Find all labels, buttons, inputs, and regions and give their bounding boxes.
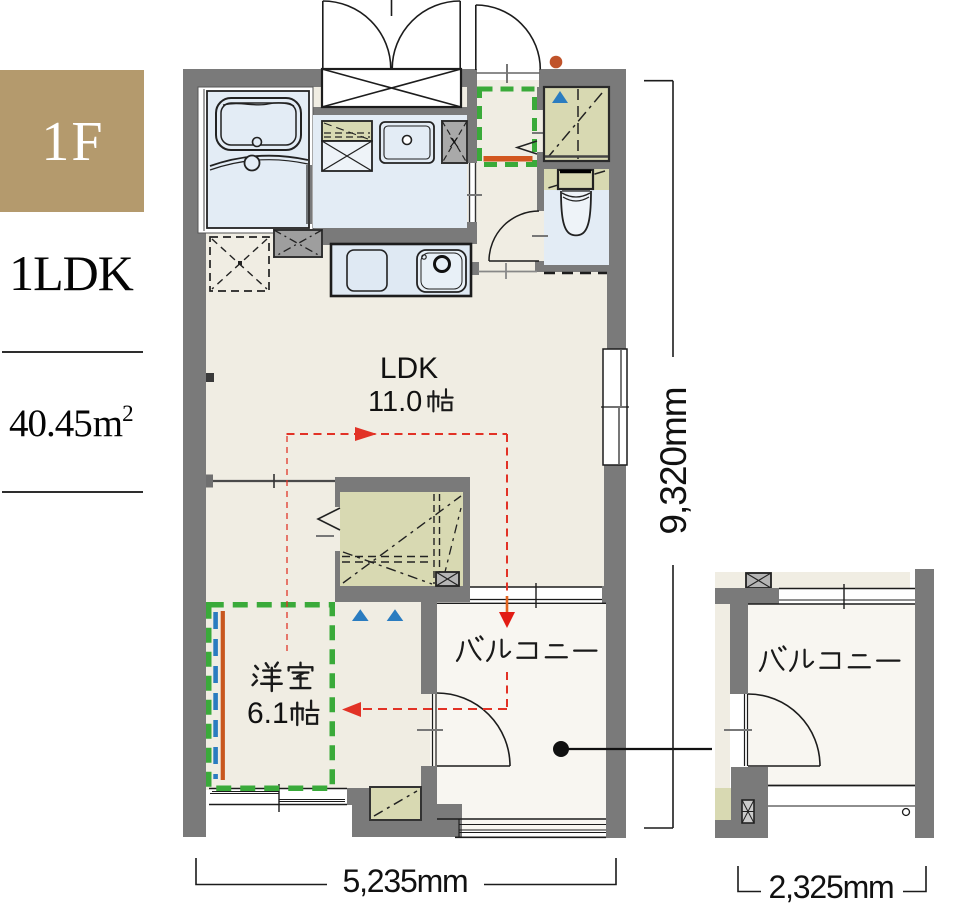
svg-text:1F: 1F: [41, 111, 104, 173]
svg-text:6.1: 6.1: [247, 697, 289, 730]
svg-text:1LDK: 1LDK: [9, 245, 134, 301]
svg-text:LDK: LDK: [380, 352, 438, 385]
svg-text:X: X: [449, 134, 459, 150]
svg-text:9,320mm: 9,320mm: [653, 387, 694, 534]
svg-text:5,235mm: 5,235mm: [343, 863, 468, 899]
svg-text:2,325mm: 2,325mm: [769, 869, 894, 905]
svg-text:40.45m2: 40.45m2: [9, 401, 133, 445]
svg-text:11.0: 11.0: [368, 386, 422, 418]
